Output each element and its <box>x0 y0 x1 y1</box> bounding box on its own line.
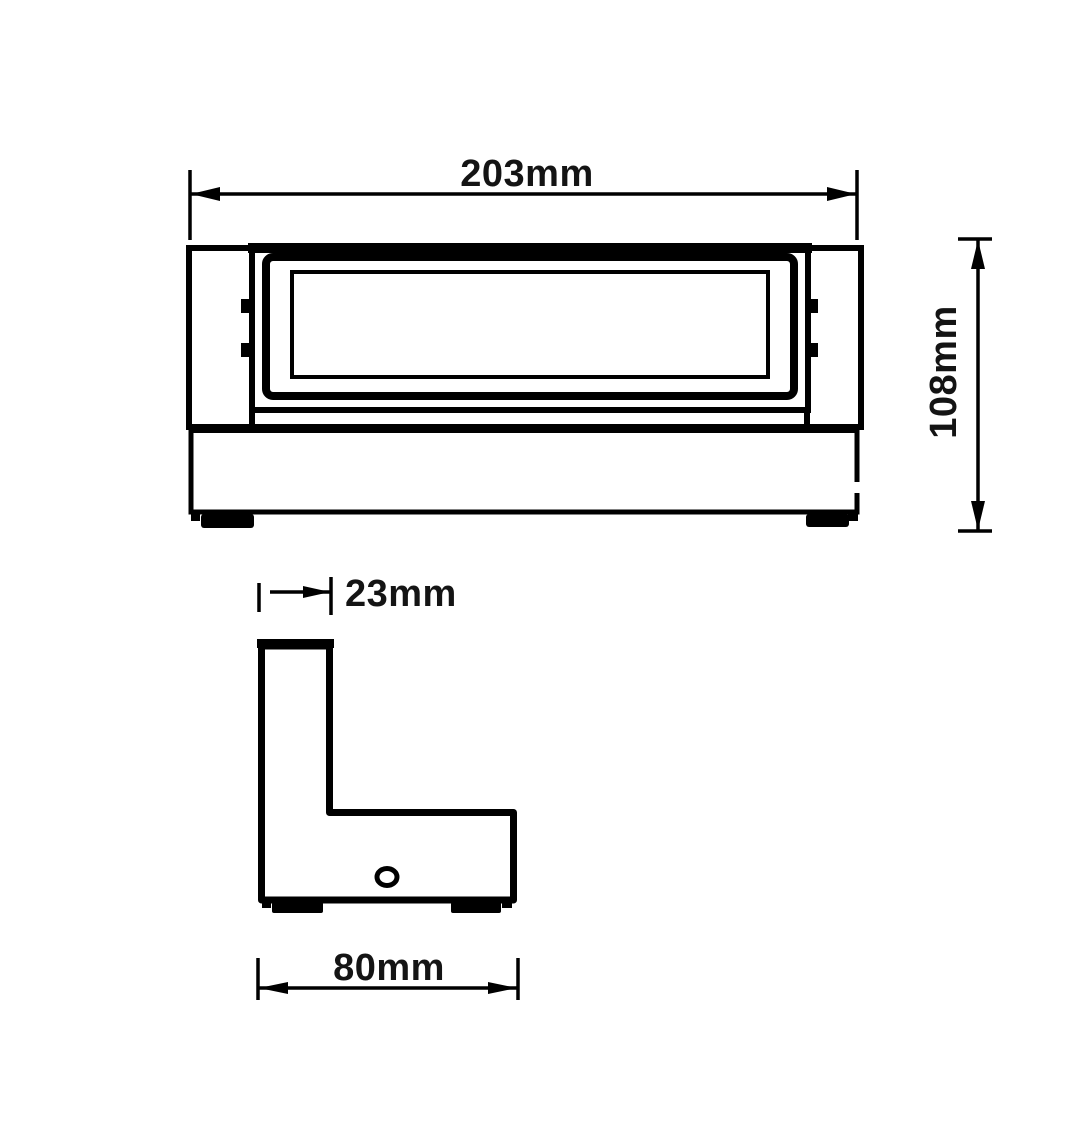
bracket-clip-right-bottom <box>805 343 818 357</box>
front-view <box>189 243 863 528</box>
base-foot-right <box>806 514 849 527</box>
side-view <box>257 639 514 913</box>
height-dimension-label: 108mm <box>923 305 965 438</box>
base-corner-nub-left <box>191 512 200 521</box>
wall-lamp-dimension-drawing: 203mm 108mm 23mm 80mm <box>0 0 1078 1144</box>
diffuser-lens <box>292 272 768 377</box>
base-depth-arrow-right <box>488 982 517 994</box>
mounting-bracket-left <box>189 248 252 427</box>
side-corner-nub-left <box>262 899 271 908</box>
base-depth-dimension-label: 80mm <box>333 947 445 989</box>
side-foot-right <box>451 902 501 913</box>
bracket-clip-left-bottom <box>241 343 254 357</box>
base-foot-left <box>201 514 254 528</box>
base-corner-nub-right <box>848 512 858 521</box>
lamp-base-top-edge <box>189 424 859 433</box>
side-profile-top-edge <box>257 639 334 648</box>
base-right-edge-notch <box>851 482 863 493</box>
top-depth-dimension-label: 23mm <box>345 573 457 615</box>
lamp-body-top-edge <box>248 243 812 253</box>
width-arrow-right <box>827 187 856 201</box>
top-depth-arrow-right <box>303 586 330 598</box>
height-arrow-top <box>971 240 985 269</box>
width-arrow-left <box>191 187 220 201</box>
base-depth-arrow-left <box>259 982 288 994</box>
technical-drawing-page: 203mm 108mm 23mm 80mm <box>0 0 1078 1144</box>
bracket-clip-right-top <box>805 299 818 313</box>
height-arrow-bottom <box>971 501 985 530</box>
bracket-clip-left-top <box>241 299 254 313</box>
side-foot-left <box>272 902 323 913</box>
height-dimension: 108mm <box>923 239 992 531</box>
side-profile-outline <box>262 646 514 900</box>
base-depth-dimension: 80mm <box>258 947 518 1000</box>
width-dimension-label: 203mm <box>460 153 593 195</box>
side-corner-nub-right <box>502 899 512 908</box>
width-dimension: 203mm <box>190 153 857 240</box>
mounting-bracket-right <box>807 248 861 427</box>
top-depth-dimension: 23mm <box>259 573 457 615</box>
cable-hole <box>377 869 397 886</box>
lamp-base <box>191 428 857 512</box>
